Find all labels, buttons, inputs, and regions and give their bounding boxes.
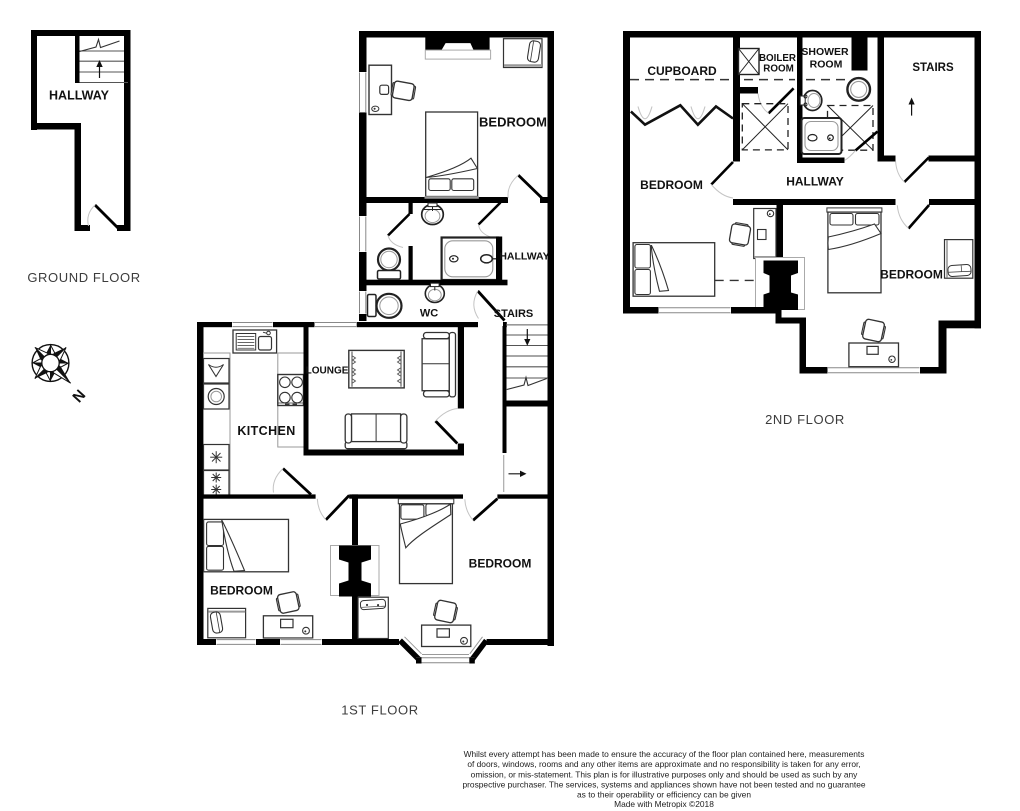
svg-text:BEDROOM: BEDROOM bbox=[469, 557, 532, 571]
svg-text:ROOM: ROOM bbox=[810, 59, 843, 71]
svg-text:STAIRS: STAIRS bbox=[912, 62, 954, 74]
svg-text:SHOWER: SHOWER bbox=[801, 46, 849, 58]
svg-text:WC: WC bbox=[420, 308, 438, 320]
svg-text:STAIRS: STAIRS bbox=[494, 308, 534, 320]
svg-text:BEDROOM: BEDROOM bbox=[210, 584, 273, 598]
svg-text:BEDROOM: BEDROOM bbox=[640, 178, 703, 192]
svg-text:1ST FLOOR: 1ST FLOOR bbox=[341, 703, 418, 718]
svg-text:prospective purchaser. The ser: prospective purchaser. The services, sys… bbox=[462, 779, 865, 789]
svg-text:of doors, windows, rooms and a: of doors, windows, rooms and any other i… bbox=[467, 759, 860, 769]
svg-text:HALLWAY: HALLWAY bbox=[786, 175, 844, 189]
svg-text:BEDROOM: BEDROOM bbox=[479, 115, 547, 130]
svg-text:GROUND FLOOR: GROUND FLOOR bbox=[27, 270, 140, 285]
svg-text:omission, or mis-statement. Th: omission, or mis-statement. This plan is… bbox=[471, 769, 858, 779]
svg-text:BEDROOM: BEDROOM bbox=[880, 268, 943, 282]
svg-text:LOUNGE: LOUNGE bbox=[306, 366, 349, 377]
svg-text:Made with Metropix ©2018: Made with Metropix ©2018 bbox=[614, 799, 714, 809]
svg-text:BOILER: BOILER bbox=[759, 53, 796, 64]
svg-text:as to their operability or eff: as to their operability or efficiency ca… bbox=[577, 789, 751, 799]
svg-text:CUPBOARD: CUPBOARD bbox=[647, 64, 717, 78]
svg-text:HALLWAY: HALLWAY bbox=[499, 251, 549, 263]
svg-text:HALLWAY: HALLWAY bbox=[49, 89, 110, 103]
svg-text:KITCHEN: KITCHEN bbox=[237, 424, 295, 438]
svg-text:2ND FLOOR: 2ND FLOOR bbox=[765, 412, 845, 427]
svg-text:ROOM: ROOM bbox=[763, 64, 793, 75]
svg-text:Whilst every attempt has been: Whilst every attempt has been made to en… bbox=[464, 749, 865, 759]
